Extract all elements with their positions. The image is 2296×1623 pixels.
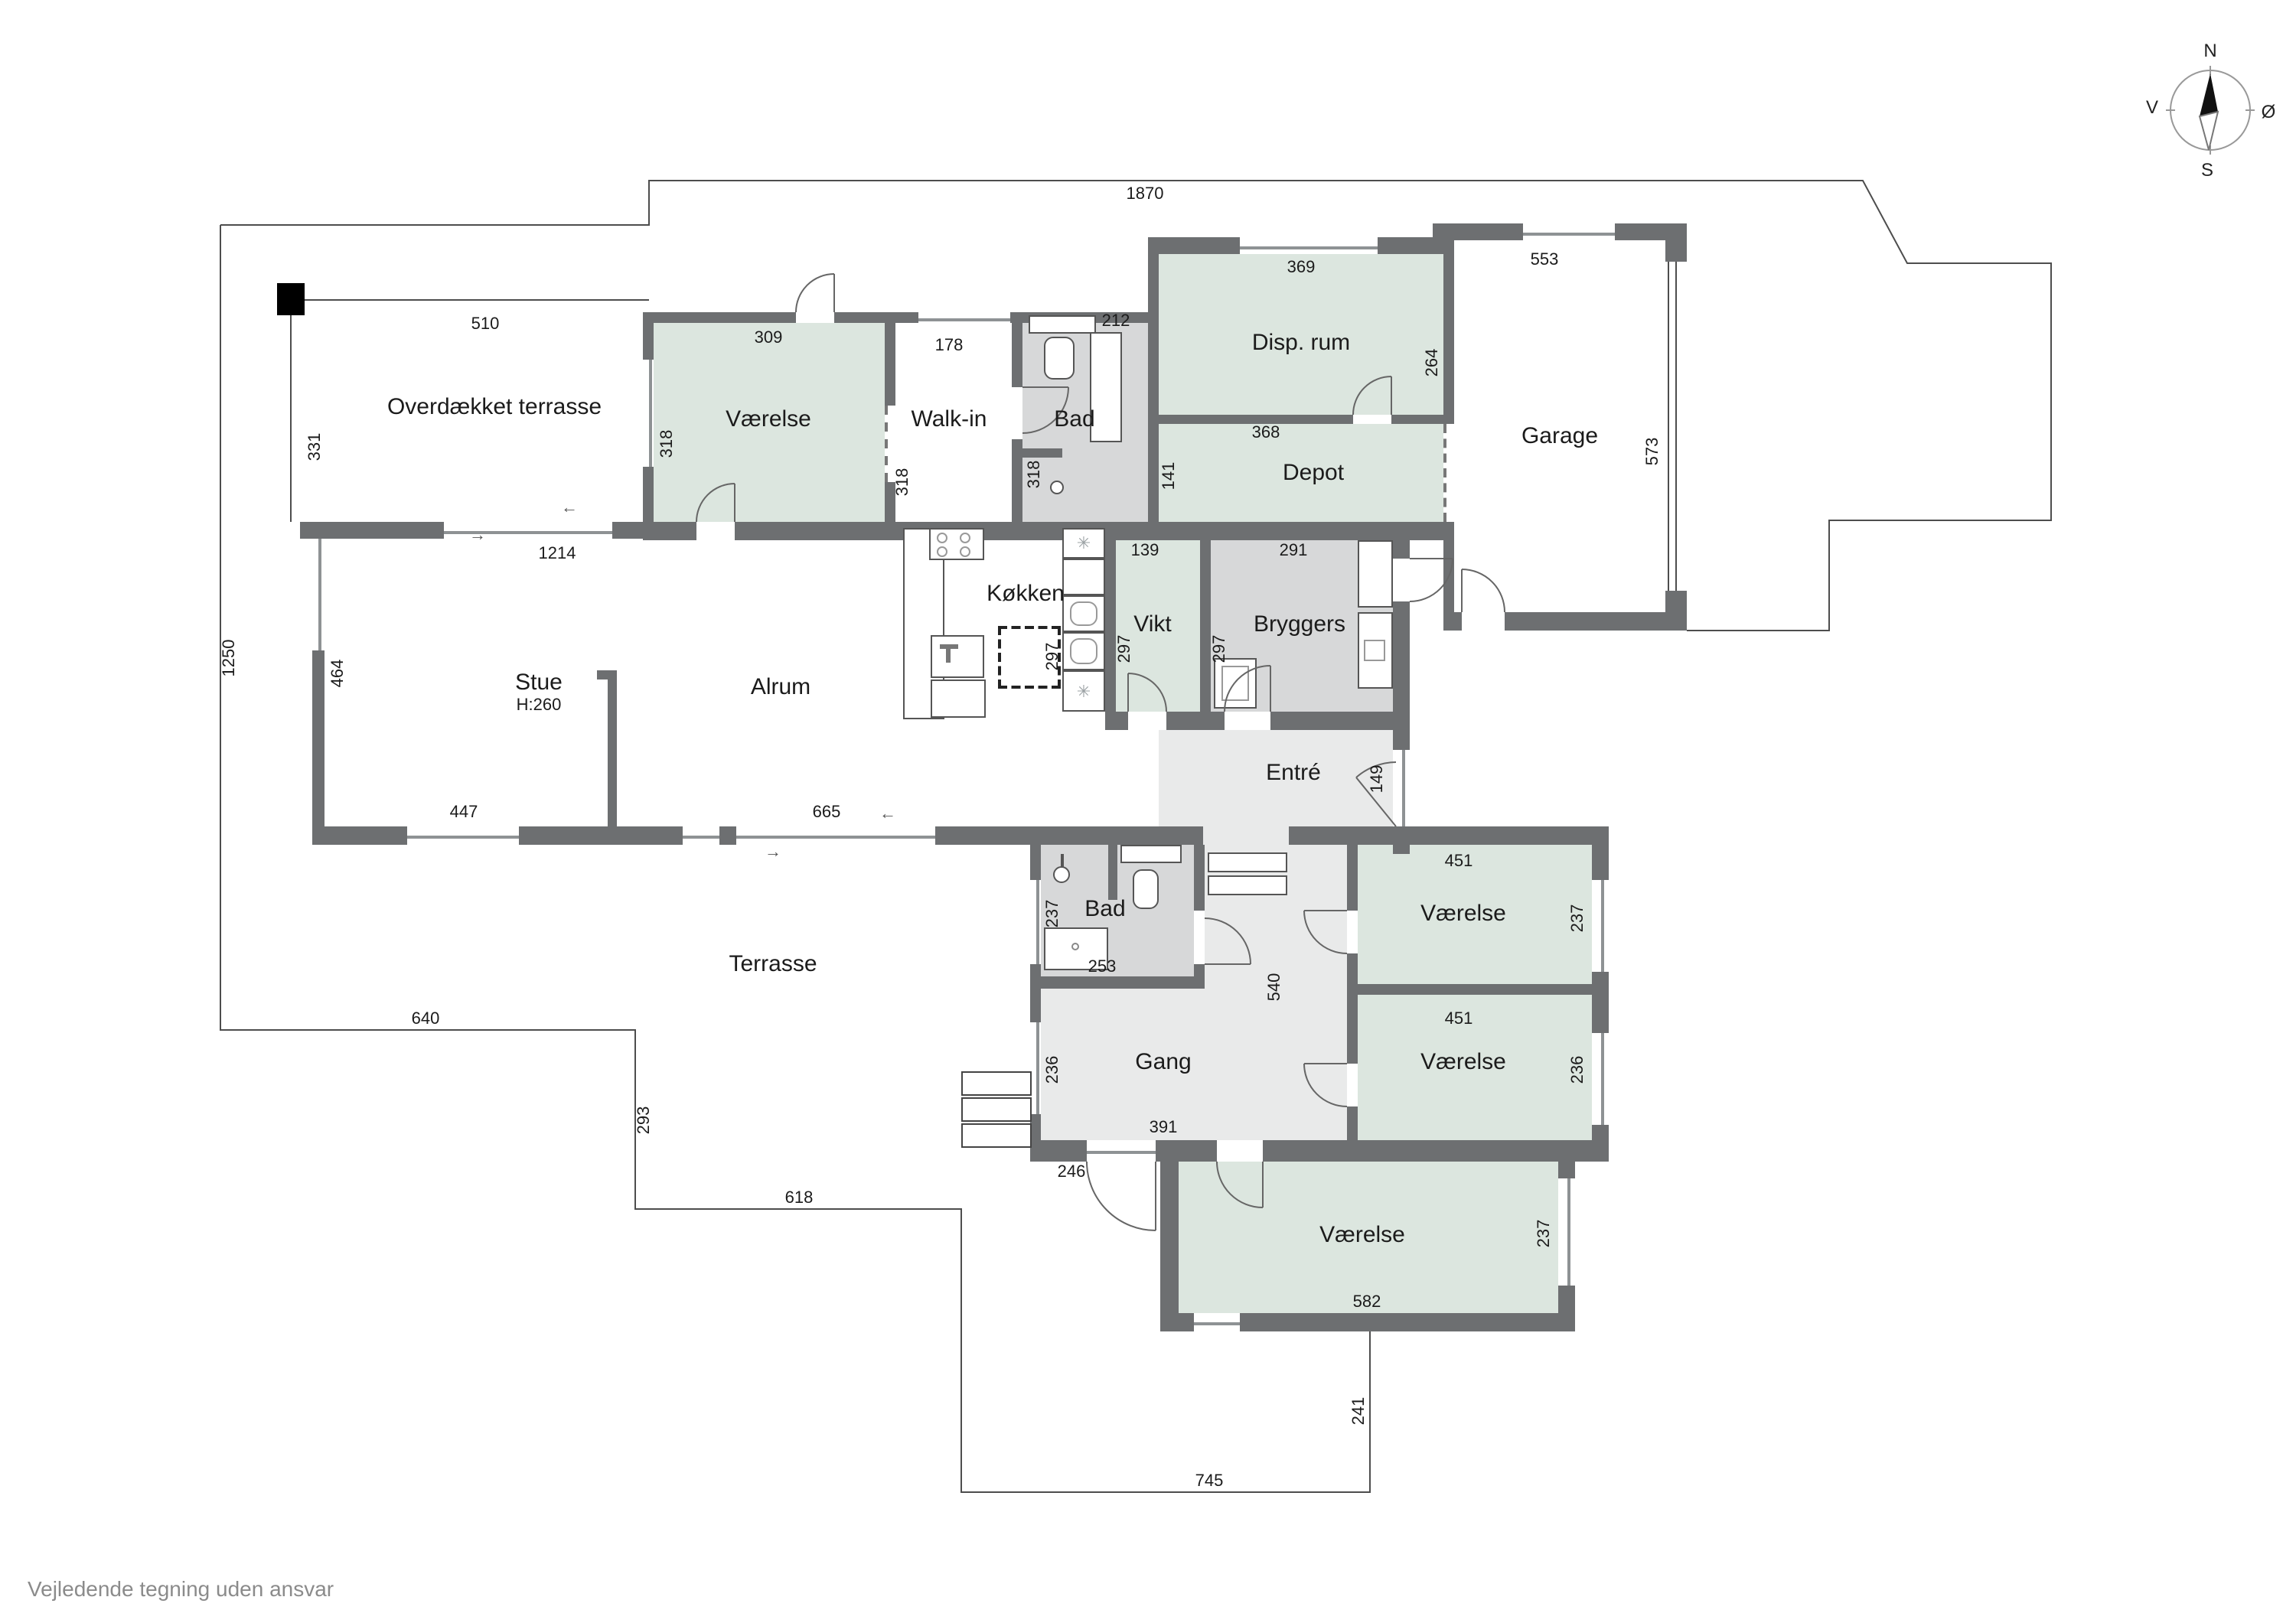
wall	[300, 522, 444, 539]
slide-arrow-icon: ←	[879, 805, 896, 823]
dimension-label: 451	[1445, 1010, 1473, 1028]
terrace-step	[961, 1097, 1032, 1122]
room-label-bryggers: Bryggers	[1254, 611, 1345, 637]
dimension-label: 582	[1353, 1293, 1381, 1312]
wall	[1347, 845, 1358, 911]
slide-arrow-icon: ←	[561, 499, 578, 517]
partition-wall	[608, 680, 617, 826]
dimension-label: 1214	[539, 545, 576, 563]
dashed-opening	[1443, 424, 1454, 522]
dimension-label: 139	[1131, 542, 1159, 560]
faucet-icon	[946, 649, 951, 663]
dimension-label: 237	[1044, 900, 1062, 928]
wall	[1558, 1286, 1575, 1313]
wall	[643, 522, 696, 540]
dimension-label: 451	[1445, 852, 1473, 871]
wall	[612, 522, 643, 539]
dimension-label: 297	[1116, 635, 1134, 663]
wall	[1347, 1106, 1358, 1140]
window	[1592, 1033, 1609, 1125]
room-label-stue-height: H:260	[517, 696, 562, 715]
sink-counter	[1029, 315, 1096, 334]
room-label-stue: Stue	[515, 670, 563, 696]
window	[407, 826, 519, 845]
sink-counter	[1120, 845, 1182, 863]
terrace-post	[277, 283, 305, 315]
wall	[1391, 415, 1443, 424]
wall	[1443, 240, 1454, 424]
window	[1030, 1022, 1041, 1114]
wall	[1240, 1313, 1575, 1331]
dimension-label: 318	[894, 468, 912, 497]
terrace-step	[961, 1071, 1032, 1096]
oven-icon	[1070, 638, 1097, 664]
door-arc	[796, 274, 834, 312]
dimension-label: 369	[1287, 259, 1316, 277]
burner-icon	[960, 533, 970, 543]
wall	[1030, 1114, 1041, 1140]
dimension-label: 368	[1252, 424, 1280, 442]
wall	[935, 826, 1203, 845]
fridge-icon: ✳	[1077, 682, 1091, 702]
window	[643, 360, 654, 467]
dimension-label: 236	[1569, 1056, 1587, 1084]
dimension-label: 297	[1044, 643, 1062, 671]
door-arc	[1087, 1162, 1156, 1230]
wall	[1358, 984, 1592, 995]
window	[1523, 223, 1615, 240]
oven-icon	[1070, 601, 1097, 626]
wall	[1012, 323, 1022, 387]
room-label-alrum: Alrum	[751, 674, 810, 700]
dimension-label: 241	[1350, 1397, 1368, 1426]
terrace-step	[961, 1123, 1032, 1148]
toilet	[1133, 869, 1159, 909]
entry-door-sidelight	[1393, 750, 1410, 826]
window	[1030, 880, 1041, 964]
compass-east: Ø	[2262, 101, 2276, 122]
dimension-label: 253	[1088, 958, 1117, 976]
dimension-label: 297	[1211, 635, 1229, 663]
room-label-entre: Entré	[1266, 760, 1321, 786]
wall	[1615, 223, 1687, 240]
door-arc	[1462, 569, 1505, 612]
wall	[1270, 712, 1410, 730]
window	[918, 312, 1010, 323]
disclaimer-text: Vejledende tegning uden ansvar	[28, 1576, 334, 1601]
wall	[1289, 826, 1609, 845]
wall	[1592, 1125, 1609, 1140]
wall	[1148, 237, 1159, 540]
dimension-label: 149	[1368, 765, 1387, 794]
wall-stub	[1108, 845, 1117, 900]
dimension-label: 1870	[1127, 185, 1164, 204]
dimension-label: 236	[1044, 1056, 1062, 1084]
window	[1240, 237, 1378, 254]
closet	[1208, 852, 1287, 872]
wall	[1030, 1140, 1087, 1162]
dimension-label: 447	[450, 803, 478, 822]
burner-icon	[937, 533, 947, 543]
terrace-door	[1087, 1140, 1156, 1162]
dimension-label: 573	[1644, 438, 1662, 466]
wall	[643, 323, 654, 360]
wall	[1105, 540, 1116, 712]
wall	[1505, 612, 1687, 631]
wall	[1393, 826, 1410, 854]
wall	[1030, 964, 1041, 1022]
room-label-bad-nord: Bad	[1054, 406, 1094, 432]
wall	[1148, 237, 1240, 254]
dimension-label: 246	[1058, 1163, 1086, 1181]
shower-icon	[1061, 854, 1064, 868]
dimension-label: 510	[471, 315, 500, 334]
room-label-gang: Gang	[1135, 1049, 1191, 1075]
wall	[1393, 540, 1410, 559]
dimension-label: 237	[1569, 904, 1587, 933]
window	[1592, 880, 1609, 972]
washing-machine-icon	[1221, 666, 1249, 701]
floor-plan: ✳ ✳	[0, 0, 2296, 1622]
window	[312, 539, 325, 650]
compass-north: N	[2203, 40, 2216, 61]
kitchen-sink	[931, 635, 984, 678]
room-label-vaerelse-2: Værelse	[1420, 1049, 1506, 1075]
wall	[1263, 1140, 1575, 1162]
room-label-koekken: Køkken	[987, 581, 1065, 607]
sliding-door	[736, 826, 935, 845]
freezer-icon: ✳	[1077, 533, 1091, 553]
wall	[519, 826, 683, 845]
wall	[1433, 223, 1523, 240]
wall	[1160, 1313, 1194, 1331]
shower-icon	[1053, 866, 1070, 883]
garage-door-post	[1665, 240, 1687, 262]
dimension-label: 293	[635, 1106, 654, 1135]
room-fill-passage	[1203, 826, 1289, 845]
compass-icon	[2166, 66, 2255, 155]
room-fill-gang	[1041, 989, 1347, 1140]
wall	[1592, 972, 1609, 1033]
dimension-label: 212	[1102, 312, 1130, 331]
dimension-label: 391	[1150, 1119, 1178, 1137]
dimension-label: 264	[1424, 349, 1442, 377]
room-label-terrasse: Terrasse	[729, 951, 817, 977]
wall	[1166, 712, 1225, 730]
slide-arrow-icon: →	[765, 843, 781, 862]
wall	[1393, 730, 1410, 750]
burner-icon	[960, 546, 970, 557]
kitchen-tall-cabinet	[1062, 559, 1105, 595]
dimension-label: 318	[1026, 461, 1044, 489]
wall	[834, 312, 918, 323]
dimension-label: 331	[306, 433, 325, 461]
wall	[643, 312, 796, 323]
dimension-label: 318	[658, 430, 677, 458]
dimension-label: 141	[1160, 462, 1179, 490]
dimension-label: 178	[935, 337, 964, 355]
garage-door-post	[1665, 591, 1687, 612]
room-label-bad-syd: Bad	[1084, 896, 1125, 922]
toilet	[1044, 337, 1075, 380]
room-label-vaerelse-1: Værelse	[1420, 901, 1506, 927]
wall	[312, 650, 325, 845]
dishwasher	[931, 680, 986, 718]
wall	[719, 826, 736, 845]
wall	[643, 467, 654, 522]
dimension-label: 540	[1266, 973, 1284, 1002]
wall	[1347, 953, 1358, 1064]
dimension-label: 237	[1535, 1220, 1554, 1248]
room-label-vaerelse-3: Værelse	[1319, 1222, 1405, 1248]
wall	[1194, 964, 1205, 989]
dimension-label: 618	[785, 1189, 814, 1207]
vanity-dot-icon	[1071, 943, 1079, 950]
floor-drain-icon	[1050, 481, 1064, 494]
dimension-label: 665	[813, 803, 841, 822]
wall	[1012, 439, 1022, 522]
wall	[1030, 976, 1205, 989]
dimension-label: 309	[755, 329, 783, 347]
window	[1194, 1313, 1240, 1331]
room-label-depot: Depot	[1283, 460, 1344, 486]
wall	[1160, 1162, 1179, 1313]
dimension-label: 291	[1280, 542, 1308, 560]
wall	[1194, 845, 1205, 911]
dimension-label: 745	[1195, 1472, 1224, 1491]
wall	[1575, 1140, 1609, 1162]
wall	[1393, 601, 1410, 712]
garage-door-line	[1668, 262, 1676, 591]
partition-cap	[597, 670, 617, 680]
dimension-label: 553	[1531, 251, 1559, 269]
wall	[1030, 845, 1041, 880]
utility-sink	[1364, 640, 1385, 661]
room-label-vaerelse-nord: Værelse	[726, 406, 811, 432]
room-label-walk-in: Walk-in	[912, 406, 987, 432]
wall	[1156, 1140, 1217, 1162]
wall	[1454, 612, 1462, 631]
wall	[1159, 415, 1353, 424]
dimension-label: 1250	[220, 640, 239, 677]
wall	[1558, 1162, 1575, 1178]
burner-icon	[937, 546, 947, 557]
wall	[1105, 712, 1128, 730]
room-label-garage: Garage	[1521, 423, 1598, 449]
closet	[1208, 875, 1287, 895]
dimension-label: 464	[329, 660, 347, 688]
wall-stub	[1022, 448, 1062, 458]
wall	[1592, 845, 1609, 880]
room-label-disp-rum: Disp. rum	[1252, 330, 1350, 356]
compass-south: S	[2201, 159, 2213, 181]
room-label-overdaekket-terrasse: Overdækket terrasse	[387, 394, 602, 420]
room-label-vikt: Vikt	[1133, 611, 1171, 637]
window	[683, 826, 719, 845]
compass-west: V	[2146, 96, 2158, 118]
wall	[312, 826, 407, 845]
dimension-label: 640	[412, 1010, 440, 1028]
wall	[1200, 540, 1211, 712]
slide-arrow-icon: →	[469, 526, 486, 545]
wall	[885, 323, 895, 406]
bryggers-counter	[1358, 540, 1393, 608]
window	[1558, 1178, 1575, 1286]
